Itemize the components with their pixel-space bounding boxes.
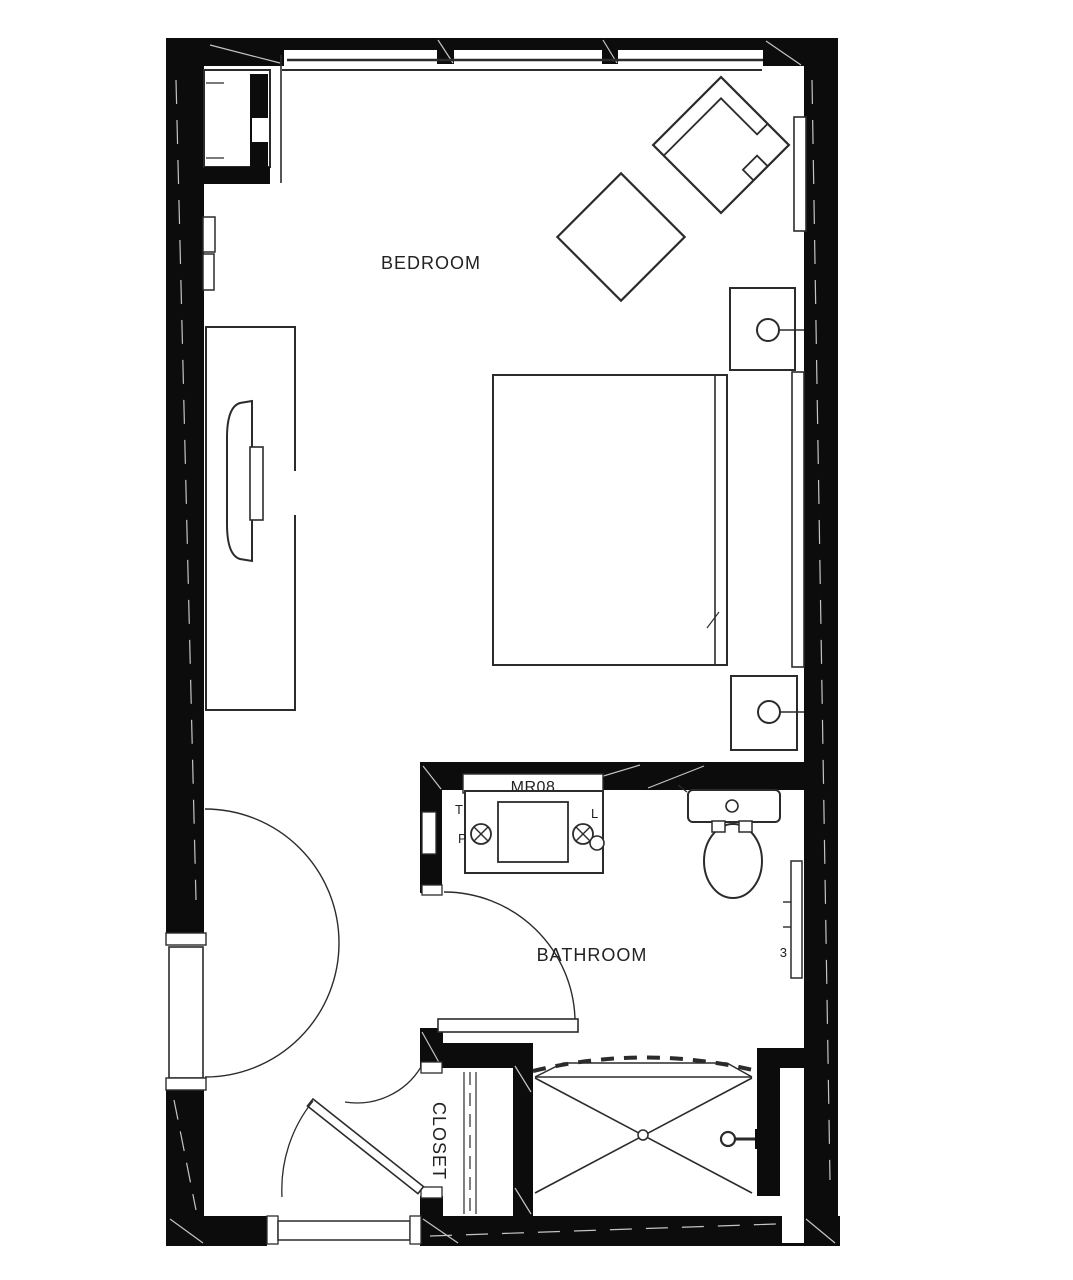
bathroom-door-leaf [438, 1019, 578, 1032]
bedroom-label: BEDROOM [381, 253, 481, 273]
lounge-chair [653, 77, 789, 213]
bed [493, 375, 727, 665]
toilet [678, 785, 780, 898]
headboard-panel [792, 372, 804, 667]
vanity-tag-t: T [455, 802, 463, 817]
closet-door-swing-arc [282, 1101, 313, 1197]
vanity-tag-p: P [458, 831, 467, 846]
wall-panel-small-1 [203, 217, 215, 252]
vanity [465, 791, 604, 873]
entry-door-leaf [169, 947, 203, 1078]
left-wall-upper [166, 38, 204, 933]
closet-tub-partition [513, 1062, 533, 1216]
toilet-bowl [704, 824, 762, 898]
wardrobe-cabinet [204, 70, 270, 184]
closet-hinge-block [420, 1196, 443, 1218]
shower-head [721, 1129, 769, 1149]
vanity-tag-l: L [591, 806, 598, 821]
entry-door-jamb-top [166, 933, 206, 945]
seat-hinge-left [712, 821, 725, 832]
grab-bar-tag: 3 [780, 945, 787, 960]
entry-door-swing-arc [205, 809, 339, 1077]
window-head [282, 38, 764, 50]
wall-shelf [794, 117, 806, 231]
wall-sconce-left [471, 824, 491, 844]
tub-partition-connector [757, 1048, 804, 1068]
entry-door-jamb-bottom [166, 1078, 206, 1090]
wall-panel-small-2 [203, 254, 214, 290]
shower-curtain [533, 1058, 757, 1072]
pipe-chase-notch [782, 1216, 804, 1243]
sconce-knob [590, 836, 604, 850]
table-lamp-top [757, 319, 779, 341]
bottom-wall-right [420, 1216, 840, 1246]
sink [498, 802, 568, 862]
floor-plan-page: MR08 T P L 3 [0, 0, 1073, 1280]
nightstand-bottom [731, 676, 804, 750]
tv [227, 401, 263, 561]
side-table [557, 173, 684, 300]
bathtub-shower [533, 1058, 757, 1194]
communicating-door [267, 1216, 421, 1244]
flush-button [726, 800, 738, 812]
bathroom-door-jamb [422, 885, 442, 895]
communicating-door-jamb-left [267, 1216, 278, 1244]
closet-label: CLOSET [429, 1102, 449, 1180]
top-wall-left [166, 38, 284, 66]
communicating-door-leaf [278, 1221, 410, 1240]
tub-right-partition [757, 1048, 780, 1196]
wall-niche [422, 812, 436, 854]
closet-door-swing-arc-2 [345, 1067, 421, 1103]
headboard-wall-panels [792, 117, 806, 667]
table-lamp-bottom [758, 701, 780, 723]
wall-switch-panels [203, 217, 215, 290]
floor-plan: MR08 T P L 3 [0, 0, 1073, 1280]
seat-hinge-right [739, 821, 752, 832]
grab-bar [783, 861, 802, 978]
nightstand-top [730, 288, 804, 370]
closet-door-leaf [307, 1099, 423, 1194]
bottom-wall-left [166, 1216, 267, 1246]
tv-mount-bracket [250, 447, 263, 520]
closet-jamb-bottom [421, 1187, 442, 1198]
communicating-door-jamb-right [410, 1216, 421, 1244]
closet-jamb-top [421, 1062, 442, 1073]
bathroom-label: BATHROOM [537, 945, 648, 965]
tub-drain [638, 1130, 648, 1140]
